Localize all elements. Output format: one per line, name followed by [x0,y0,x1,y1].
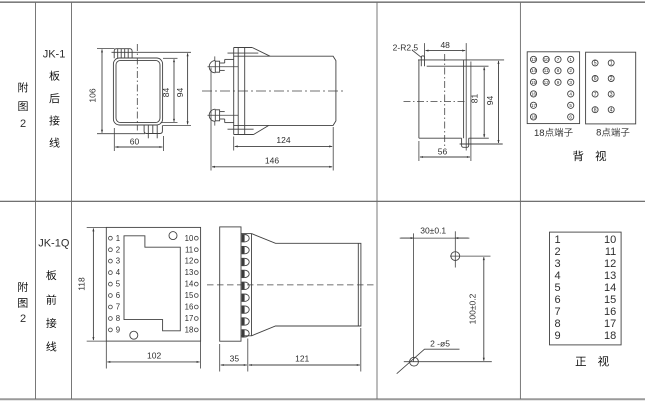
svg-text:16: 16 [185,303,194,312]
svg-text:14: 14 [604,282,616,294]
svg-text:13: 13 [185,268,194,277]
svg-text:3: 3 [569,80,572,85]
svg-text:JK-1Q: JK-1Q [38,237,70,249]
svg-text:121: 121 [295,353,309,363]
svg-text:2: 2 [20,118,26,130]
svg-text:12: 12 [544,80,550,85]
svg-text:84: 84 [161,88,171,98]
svg-text:81: 81 [469,94,479,104]
svg-text:14: 14 [531,68,537,73]
svg-text:6: 6 [555,294,561,306]
svg-text:15: 15 [531,80,537,85]
svg-text:3: 3 [555,258,561,270]
svg-text:3: 3 [610,92,613,98]
svg-text:9: 9 [557,80,560,85]
svg-text:9: 9 [555,330,561,342]
svg-text:12: 12 [185,257,194,266]
svg-text:8: 8 [555,318,561,330]
svg-text:18: 18 [604,330,616,342]
svg-text:5: 5 [555,282,561,294]
svg-text:4: 4 [555,270,561,282]
svg-text:16: 16 [604,306,616,318]
svg-text:4: 4 [610,107,613,113]
svg-text:2: 2 [610,76,613,82]
svg-text:15: 15 [604,294,616,306]
svg-text:118: 118 [77,277,87,291]
svg-text:6: 6 [116,291,120,300]
svg-text:3: 3 [116,257,120,266]
svg-text:60: 60 [130,136,140,146]
svg-text:9: 9 [116,326,120,335]
svg-text:4: 4 [116,268,121,277]
svg-text:94: 94 [175,88,185,98]
svg-text:1: 1 [569,57,572,62]
svg-text:7: 7 [594,92,597,98]
svg-text:48: 48 [440,40,450,50]
svg-text:18: 18 [185,326,194,335]
svg-text:10: 10 [604,234,616,246]
svg-text:5: 5 [594,61,597,67]
svg-text:8: 8 [116,314,120,323]
svg-text:7: 7 [557,57,560,62]
svg-text:11: 11 [605,246,616,258]
svg-text:6: 6 [569,114,572,119]
svg-text:2: 2 [569,68,572,73]
svg-text:106: 106 [87,88,97,102]
svg-text:7: 7 [555,306,561,318]
svg-text:8: 8 [557,68,560,73]
svg-text:16: 16 [531,91,537,96]
svg-text:10: 10 [185,234,194,243]
svg-text:14: 14 [185,280,194,289]
svg-text:17: 17 [531,103,537,108]
svg-text:2: 2 [555,246,561,258]
svg-text:102: 102 [147,350,161,360]
svg-text:146: 146 [265,155,279,165]
svg-text:11: 11 [185,245,193,254]
svg-text:18: 18 [531,114,537,119]
svg-text:1: 1 [116,234,120,243]
svg-text:6: 6 [594,76,597,82]
svg-text:17: 17 [185,314,194,323]
svg-text:2: 2 [20,313,26,325]
svg-text:1: 1 [555,234,561,246]
svg-text:5: 5 [116,280,121,289]
svg-text:100±0.2: 100±0.2 [468,293,478,324]
svg-text:7: 7 [116,303,120,312]
svg-text:10: 10 [544,57,550,62]
svg-text:17: 17 [604,318,616,330]
svg-text:JK-1: JK-1 [43,49,66,61]
svg-text:13: 13 [531,57,537,62]
svg-text:12: 12 [604,258,616,270]
svg-text:35: 35 [230,353,240,363]
svg-text:5: 5 [569,103,572,108]
svg-text:15: 15 [185,291,194,300]
svg-text:8: 8 [596,128,601,139]
svg-text:2: 2 [116,245,120,254]
svg-text:124: 124 [276,135,290,145]
svg-text:56: 56 [438,147,448,157]
svg-text:2 -ø5: 2 -ø5 [430,338,450,348]
svg-text:18: 18 [534,128,545,139]
svg-text:2-R2.5: 2-R2.5 [393,42,419,52]
svg-text:8: 8 [594,107,597,113]
svg-text:94: 94 [485,96,495,106]
svg-text:1: 1 [610,61,613,67]
svg-text:11: 11 [544,68,549,73]
svg-text:13: 13 [604,270,616,282]
svg-text:30±0.1: 30±0.1 [420,226,446,236]
svg-text:4: 4 [569,91,572,96]
